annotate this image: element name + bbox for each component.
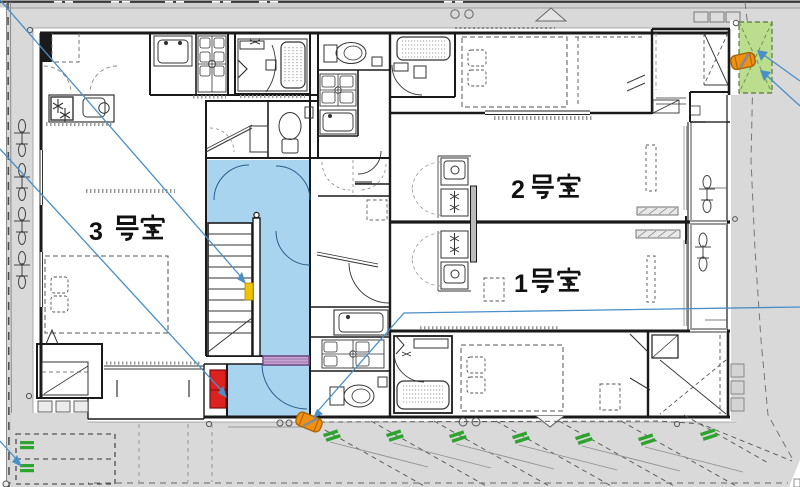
svg-text:2: 2 [511,176,525,204]
svg-text:1: 1 [514,270,528,298]
svg-text:3: 3 [89,218,103,246]
